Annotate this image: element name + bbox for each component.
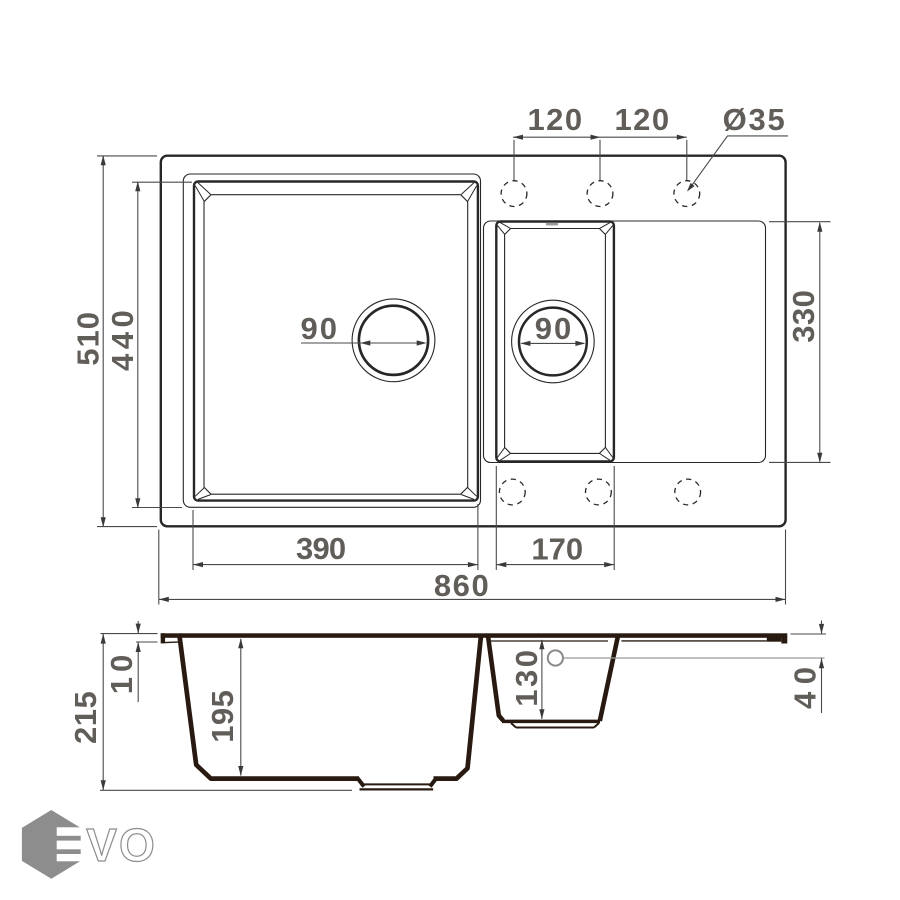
- svg-text:120: 120: [528, 102, 584, 137]
- svg-text:390: 390: [296, 531, 345, 566]
- svg-text:440: 440: [105, 306, 140, 371]
- svg-text:215: 215: [68, 691, 103, 744]
- svg-text:130: 130: [509, 647, 544, 706]
- svg-text:40: 40: [788, 660, 823, 709]
- svg-text:VO: VO: [86, 819, 156, 871]
- svg-text:90: 90: [535, 311, 573, 346]
- svg-text:170: 170: [531, 531, 583, 566]
- svg-text:330: 330: [786, 290, 821, 343]
- svg-text:10: 10: [104, 650, 139, 694]
- svg-text:195: 195: [205, 690, 240, 743]
- svg-text:120: 120: [615, 102, 671, 137]
- svg-text:90: 90: [300, 311, 338, 346]
- svg-text:510: 510: [71, 311, 106, 366]
- svg-text:860: 860: [434, 568, 491, 603]
- svg-text:Ø35: Ø35: [723, 102, 787, 137]
